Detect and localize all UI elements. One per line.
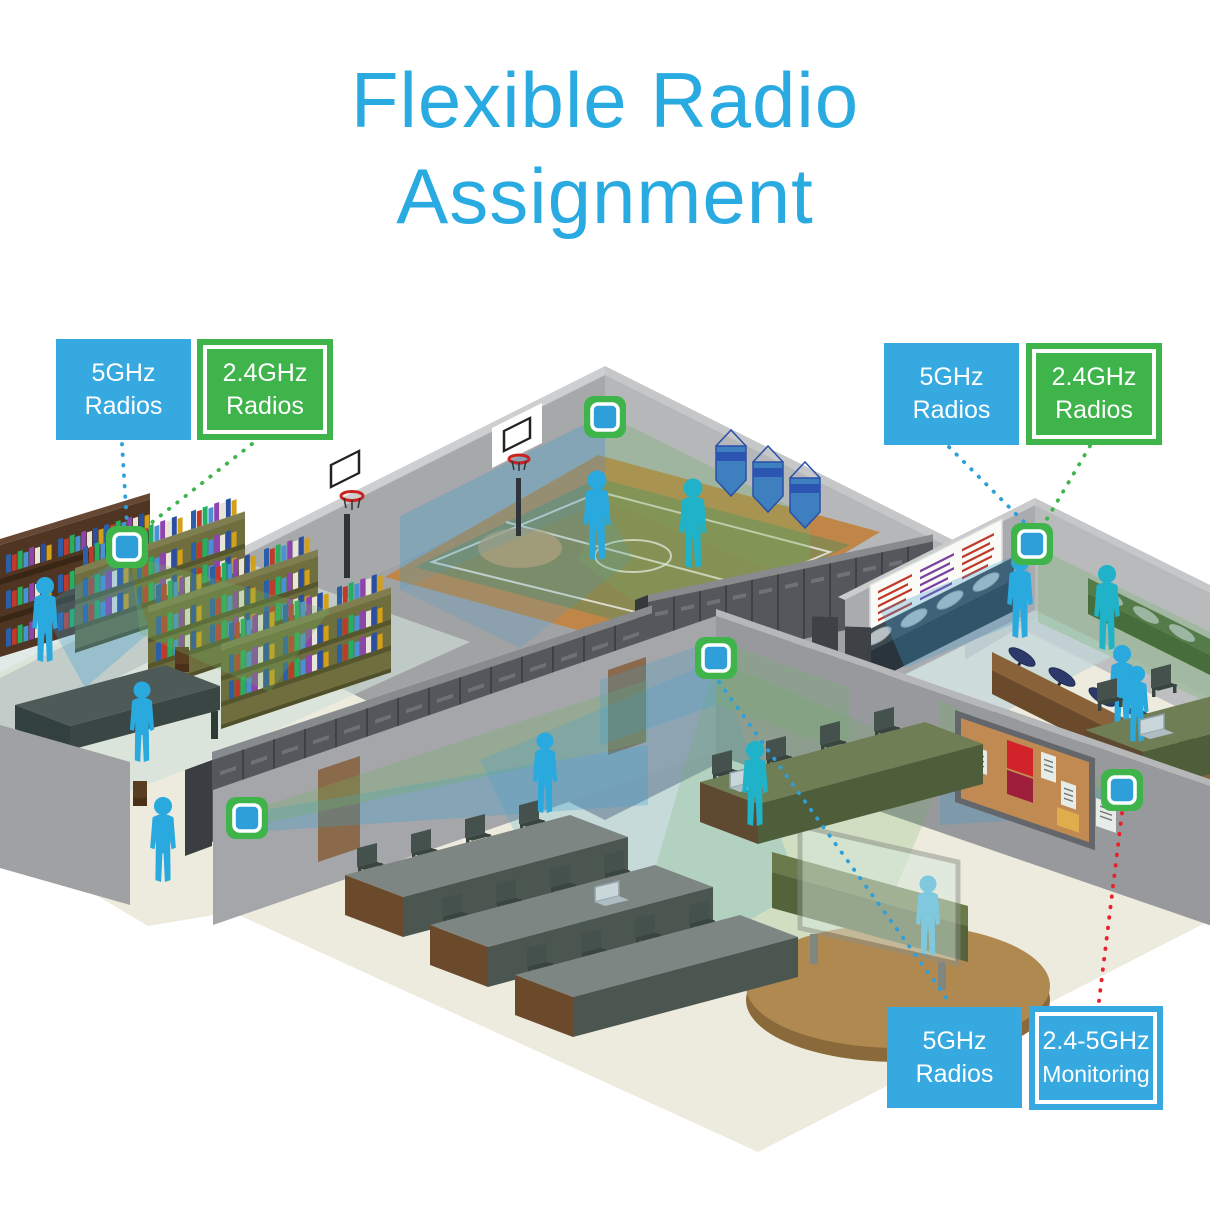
label-line: 2.4GHz <box>223 357 308 390</box>
label-top-right-24ghz-radios: 2.4GHz Radios <box>1026 343 1162 445</box>
label-line: 5GHz <box>920 361 984 394</box>
hallway-ap-icon <box>226 797 268 839</box>
label-line: 2.4-5GHz <box>1043 1025 1150 1058</box>
monitoring-ap-icon <box>1101 769 1143 811</box>
flexible-radio-assignment-infographic: Flexible Radio Assignment 5GHz Radios 2.… <box>0 0 1210 1210</box>
label-bottom-5ghz-radios: 5GHz Radios <box>887 1007 1022 1108</box>
label-line: Radios <box>1055 394 1133 427</box>
label-top-left-5ghz-radios: 5GHz Radios <box>56 339 191 440</box>
page-title: Flexible Radio Assignment <box>0 52 1210 244</box>
label-top-left-24ghz-radios: 2.4GHz Radios <box>197 339 333 440</box>
label-line: 2.4GHz <box>1052 361 1137 394</box>
label-line: 5GHz <box>923 1025 987 1058</box>
label-top-right-5ghz-radios: 5GHz Radios <box>884 343 1019 445</box>
label-bottom-monitoring: 2.4-5GHz Monitoring <box>1029 1006 1163 1110</box>
cafeteria-ap-icon <box>1011 523 1053 565</box>
label-line: 5GHz <box>92 357 156 390</box>
title-line-2: Assignment <box>0 148 1210 244</box>
label-line: Radios <box>916 1058 994 1091</box>
label-line: Radios <box>85 390 163 423</box>
gym-ap-icon <box>584 396 626 438</box>
library-ap-icon <box>106 526 148 568</box>
title-line-1: Flexible Radio <box>0 52 1210 148</box>
classroom-ap-icon <box>695 637 737 679</box>
label-line: Radios <box>226 390 304 423</box>
label-line: Radios <box>913 394 991 427</box>
label-line: Monitoring <box>1042 1058 1149 1091</box>
